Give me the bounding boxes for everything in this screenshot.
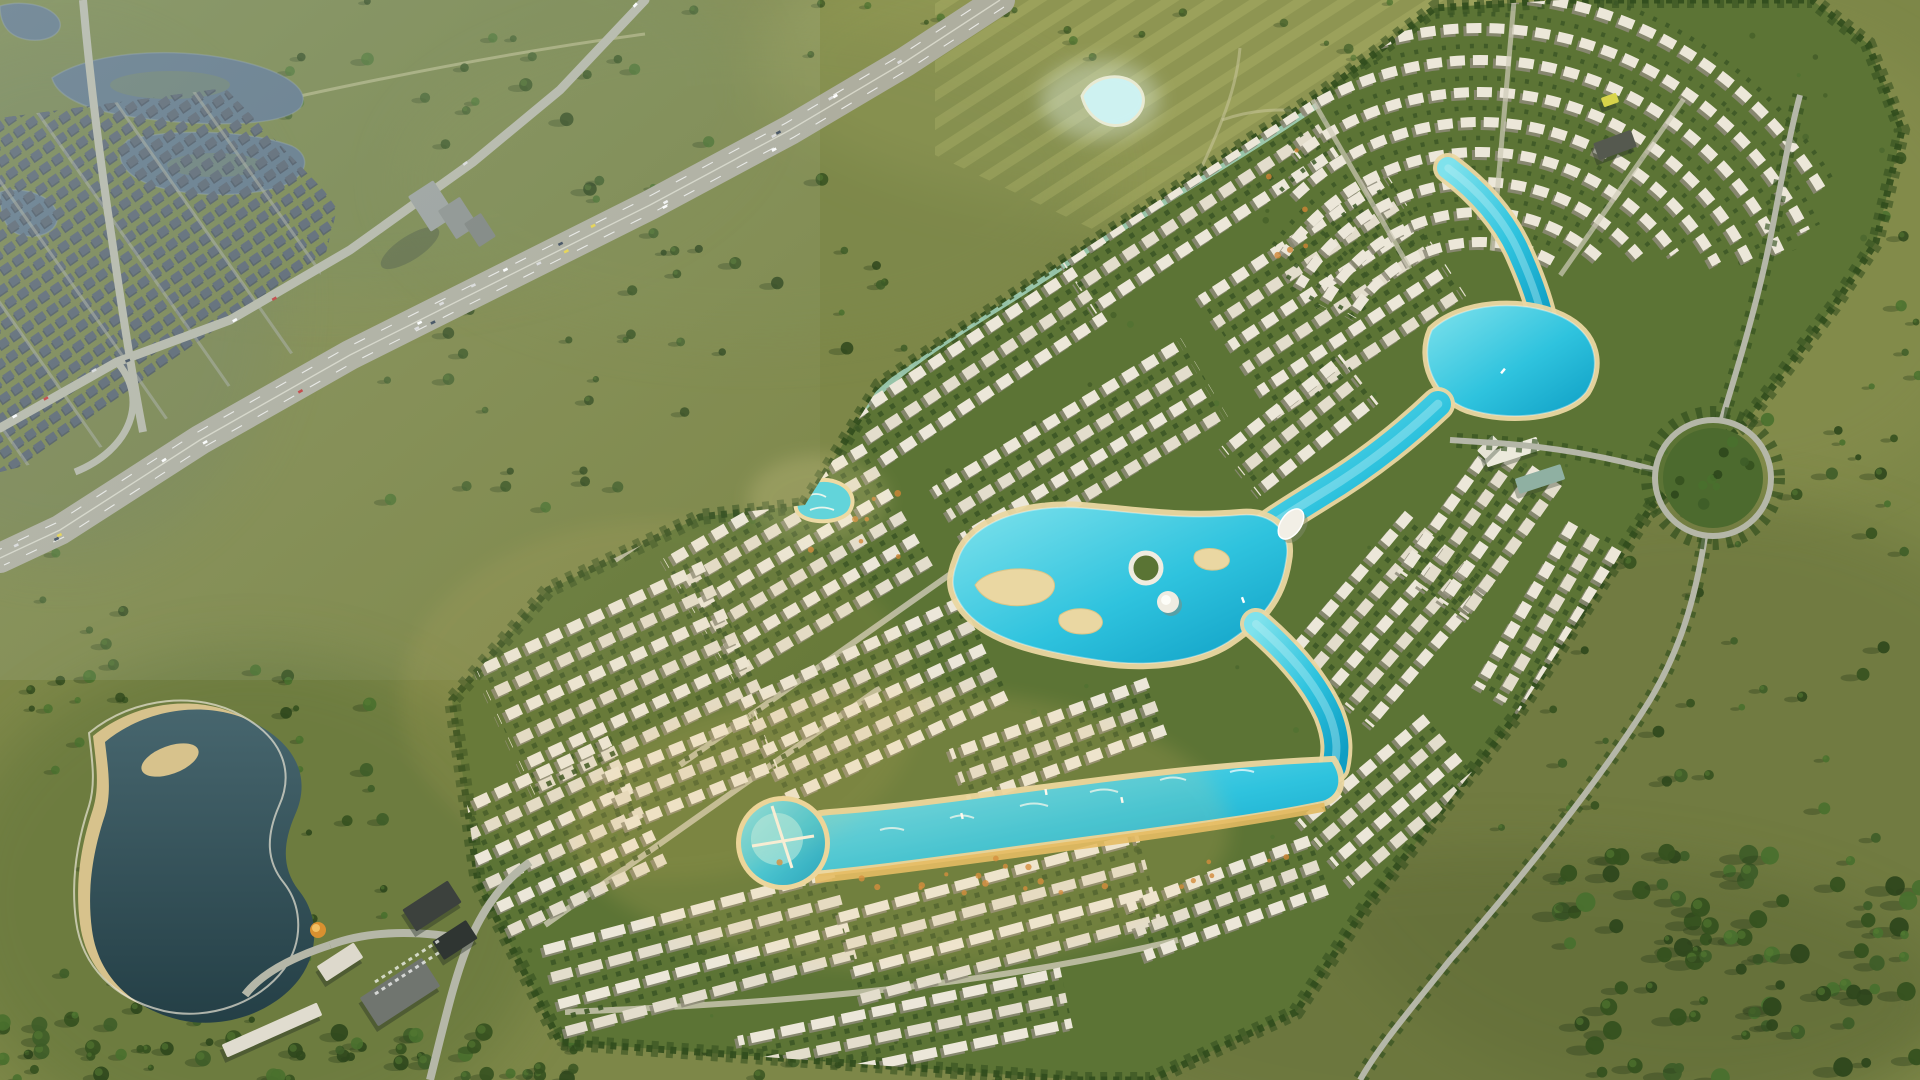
atmospheric-haze <box>0 0 820 680</box>
aerial-masterplan-screenshot <box>0 0 1920 1080</box>
aerial-render-canvas <box>0 0 1920 1080</box>
amenity-park <box>74 701 314 1023</box>
